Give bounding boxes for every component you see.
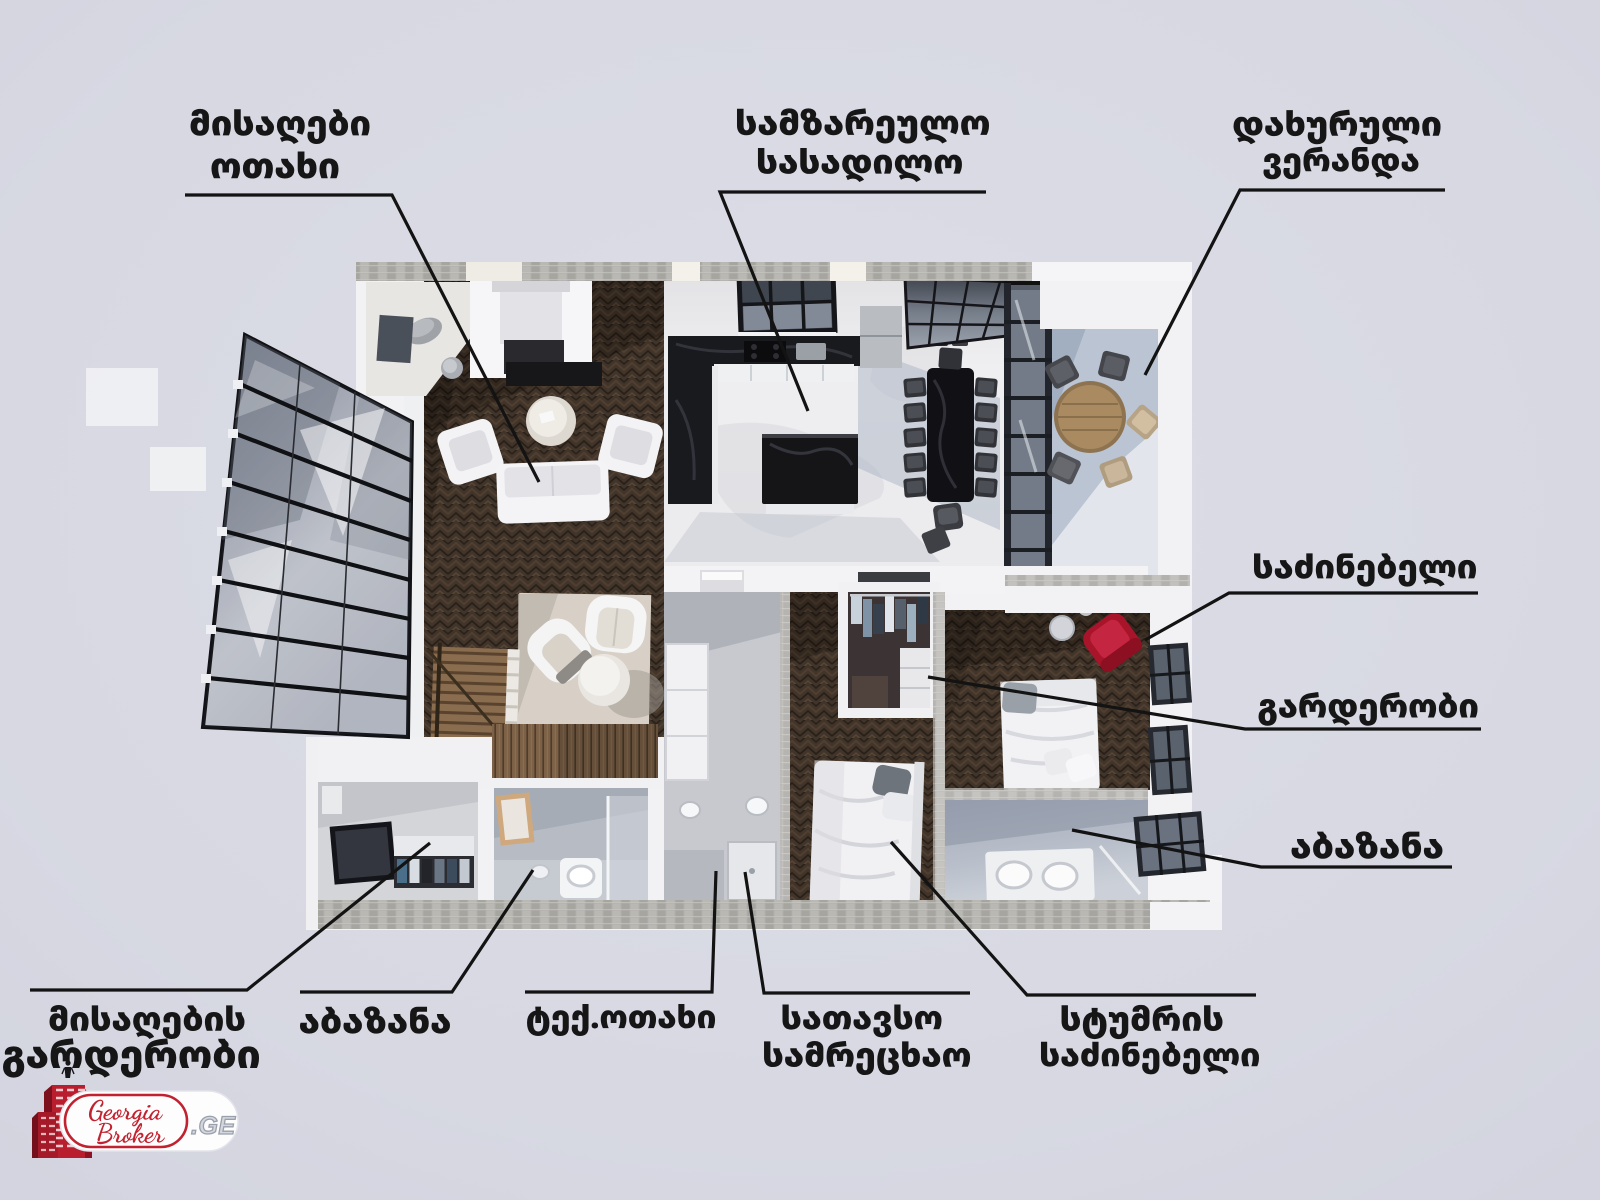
svg-text:.GE: .GE [191, 1112, 236, 1140]
